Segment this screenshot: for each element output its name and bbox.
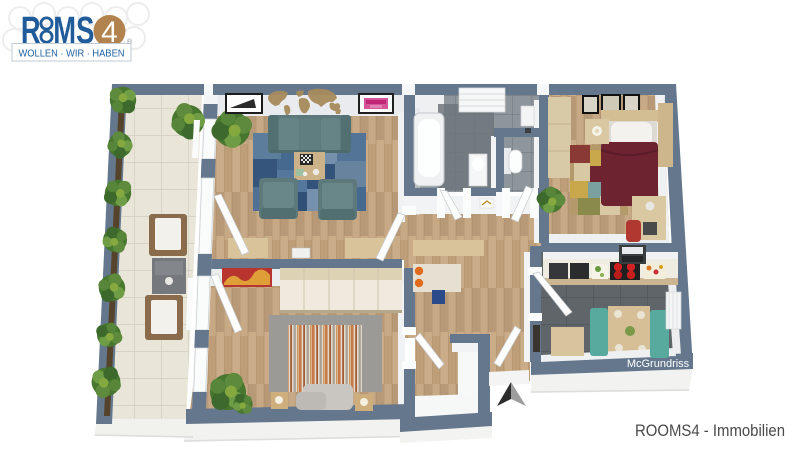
svg-text:McGrundriss: McGrundriss [627,358,690,370]
svg-text:ROOMS4 - Immobilien: ROOMS4 - Immobilien [635,421,785,440]
svg-text:WOLLEN · WIR · HABEN: WOLLEN · WIR · HABEN [19,49,125,60]
